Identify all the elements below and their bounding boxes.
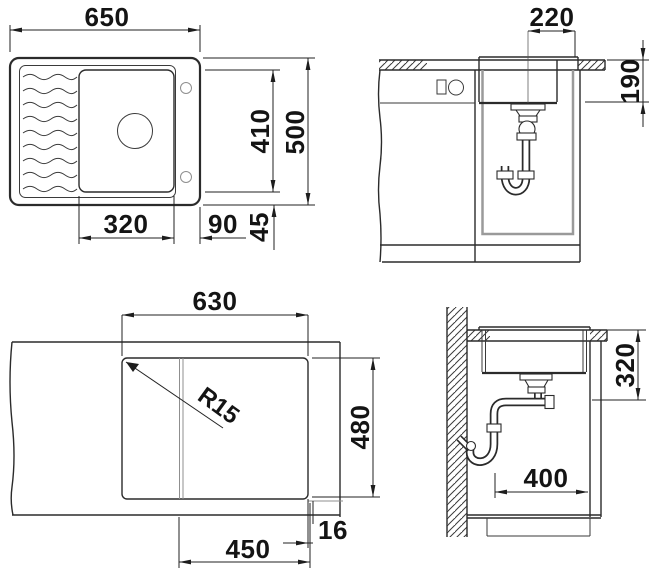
- dim-r15-label: R15: [193, 382, 244, 430]
- dim-500-label: 500: [280, 110, 310, 155]
- dim-190-label: 190: [615, 59, 645, 104]
- tap-hole-upper: [181, 83, 192, 94]
- counter-break-edge: [10, 342, 14, 515]
- side-view: 320 400: [447, 307, 646, 537]
- socket-symbol: [437, 80, 446, 94]
- dim-320-label: 320: [104, 209, 149, 239]
- bowl-walls-front: [479, 60, 557, 102]
- counter-hatch-back: [467, 330, 490, 341]
- dim-220-label: 220: [530, 2, 575, 32]
- dim-630-label: 630: [193, 286, 238, 316]
- cutout-outline: [122, 358, 308, 499]
- drain-hole: [118, 114, 153, 149]
- counter-hatch-left: [379, 60, 427, 70]
- sink-outline: [10, 58, 200, 205]
- counter-plan-outline: [12, 342, 340, 517]
- dim-480-label: 480: [345, 405, 375, 450]
- front-view: 220 190: [379, 2, 650, 262]
- wall-hatch: [447, 307, 467, 537]
- tap-hole-lower: [181, 172, 192, 183]
- dim-410-label: 410: [245, 109, 275, 154]
- drain-trap-side: [459, 374, 554, 462]
- drainboard-ridges: [23, 74, 77, 191]
- counter-hatch-front: [590, 330, 607, 341]
- dim-400-label: 400: [524, 463, 569, 493]
- cabinet-break-edge: [379, 70, 382, 262]
- drawing-canvas: 650 410 500 320 90 45: [0, 0, 657, 575]
- sink-installation-drawing: 650 410 500 320 90 45: [0, 0, 657, 575]
- radius-arrowhead: [126, 362, 139, 372]
- bowl-outline-top: [79, 70, 174, 192]
- glass-division-line: [180, 358, 184, 499]
- dim-320-side-label: 320: [610, 343, 640, 388]
- dim-650-label: 650: [85, 2, 130, 32]
- bowl-walls-side: [482, 330, 587, 372]
- cutout-view: R15 630 480 450 16: [10, 286, 380, 568]
- knob-symbol: [449, 80, 464, 95]
- plinth-side: [487, 518, 590, 536]
- dim-90-label: 90: [208, 209, 238, 239]
- dim-45-label: 45: [244, 212, 274, 242]
- top-view: 650 410 500 320 90 45: [10, 2, 315, 250]
- counter-hatch-right: [578, 60, 605, 70]
- drain-trap-front: [497, 104, 545, 191]
- dim-16-label: 16: [318, 515, 348, 545]
- dim-450-label: 450: [226, 534, 271, 564]
